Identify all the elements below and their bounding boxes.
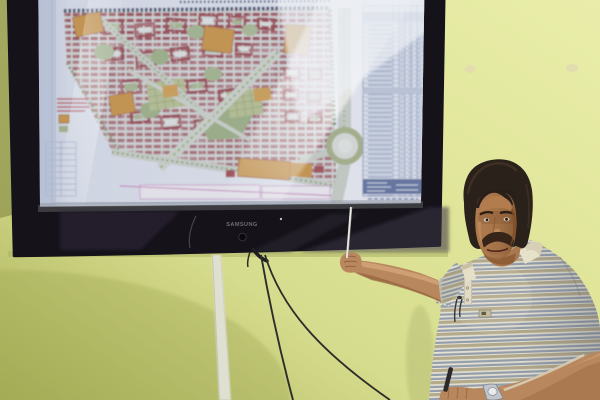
- svg-text:SAMSUNG: SAMSUNG: [226, 222, 257, 228]
